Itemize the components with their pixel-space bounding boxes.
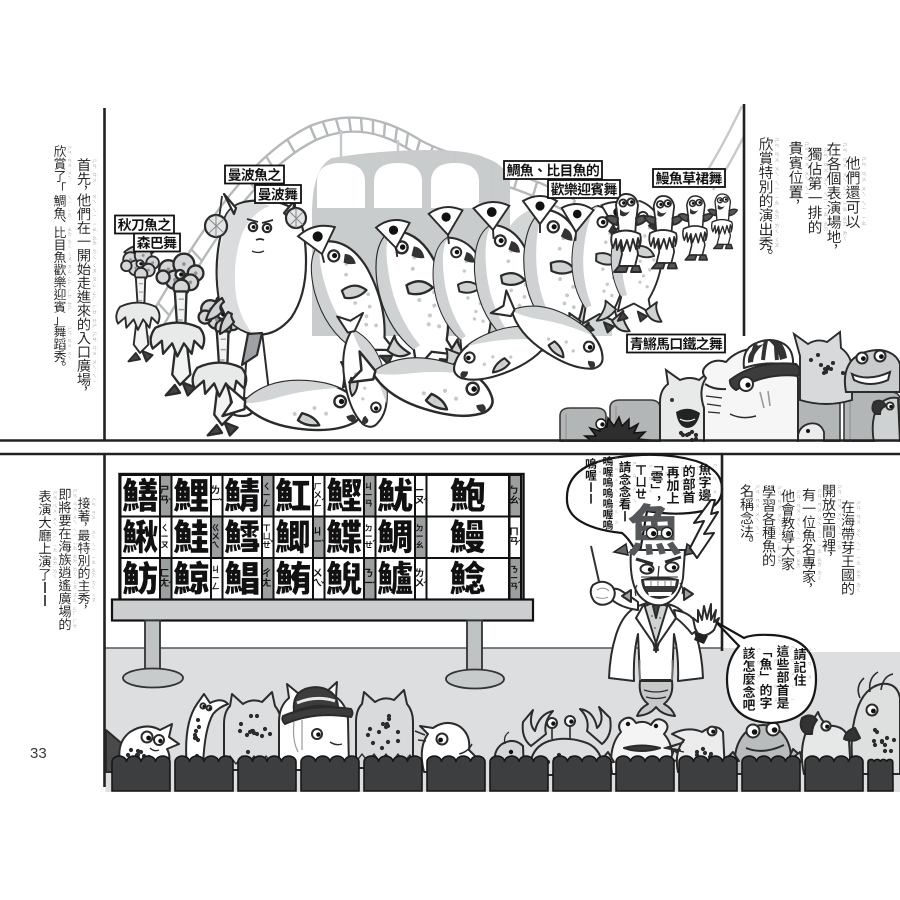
svg-text:33: 33 [30, 745, 47, 762]
